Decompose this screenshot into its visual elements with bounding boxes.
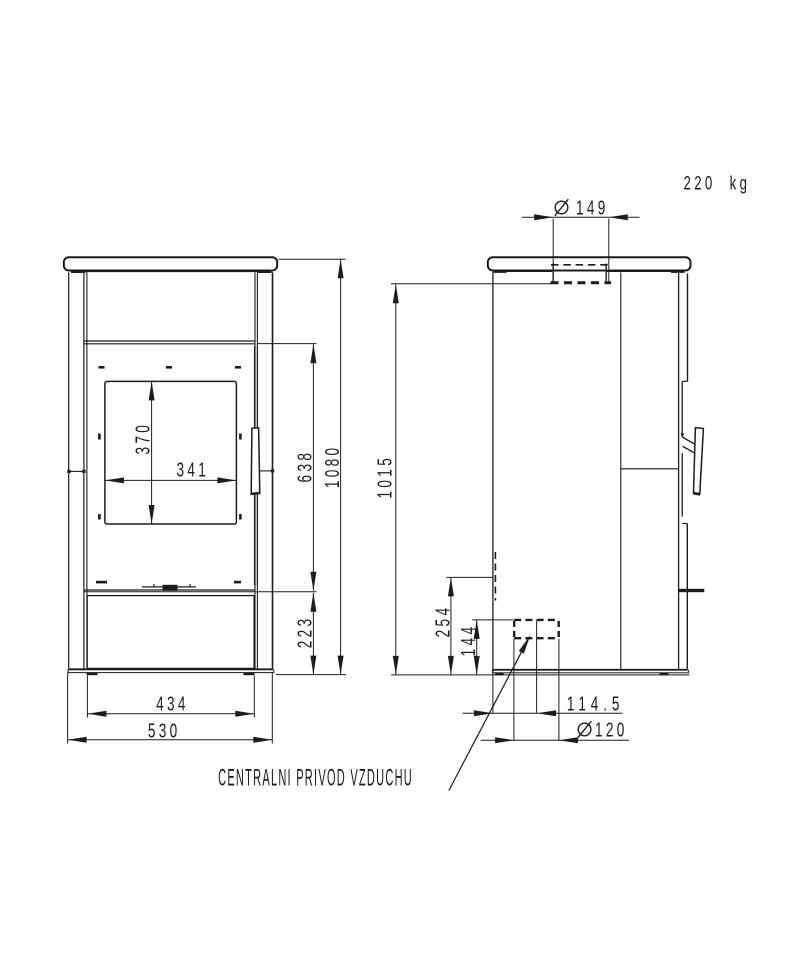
- svg-text:341: 341: [177, 459, 210, 481]
- svg-text:370: 370: [132, 422, 154, 455]
- svg-text:120: 120: [595, 719, 628, 741]
- svg-text:144: 144: [458, 624, 480, 657]
- svg-text:434: 434: [156, 693, 189, 715]
- svg-text:530: 530: [148, 720, 181, 742]
- svg-text:638: 638: [294, 450, 316, 483]
- svg-text:220 kg: 220 kg: [684, 172, 751, 194]
- svg-text:223: 223: [294, 616, 316, 649]
- svg-text:1015: 1015: [374, 455, 396, 499]
- svg-text:149: 149: [576, 197, 609, 219]
- svg-text:254: 254: [432, 605, 454, 638]
- svg-text:114.5: 114.5: [567, 693, 624, 715]
- svg-text:CENTRALNI PRIVOD VZDUCHU: CENTRALNI PRIVOD VZDUCHU: [218, 765, 413, 792]
- svg-text:1080: 1080: [321, 445, 343, 489]
